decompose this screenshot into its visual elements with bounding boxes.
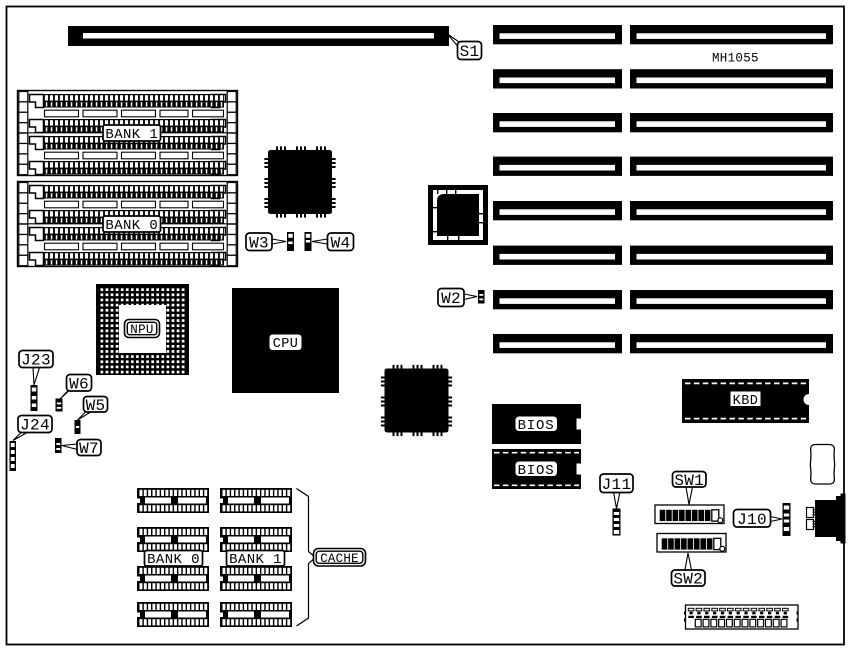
svg-text:BIOS: BIOS (518, 463, 555, 479)
svg-text:NPU: NPU (130, 323, 153, 337)
svg-text:J24: J24 (20, 417, 50, 435)
svg-text:W2: W2 (441, 290, 461, 308)
svg-text:KBD: KBD (733, 394, 759, 409)
svg-text:CACHE: CACHE (320, 552, 359, 566)
svg-text:W6: W6 (69, 375, 89, 393)
svg-text:MH1055: MH1055 (712, 51, 759, 65)
svg-text:W4: W4 (331, 234, 351, 252)
svg-text:BANK 1: BANK 1 (105, 127, 158, 143)
svg-text:BIOS: BIOS (518, 418, 555, 434)
svg-text:CPU: CPU (273, 337, 299, 352)
svg-text:W7: W7 (79, 440, 99, 458)
svg-text:SW1: SW1 (674, 472, 704, 490)
svg-text:J23: J23 (21, 352, 51, 370)
svg-text:BANK 0: BANK 0 (147, 552, 200, 568)
svg-text:W5: W5 (86, 397, 106, 415)
svg-text:SW2: SW2 (673, 571, 703, 589)
svg-text:J11: J11 (602, 476, 632, 494)
svg-text:J10: J10 (737, 511, 767, 529)
svg-text:BANK 1: BANK 1 (229, 552, 282, 568)
svg-text:S1: S1 (460, 43, 480, 61)
svg-text:W3: W3 (249, 234, 269, 252)
svg-text:BANK 0: BANK 0 (105, 218, 158, 234)
